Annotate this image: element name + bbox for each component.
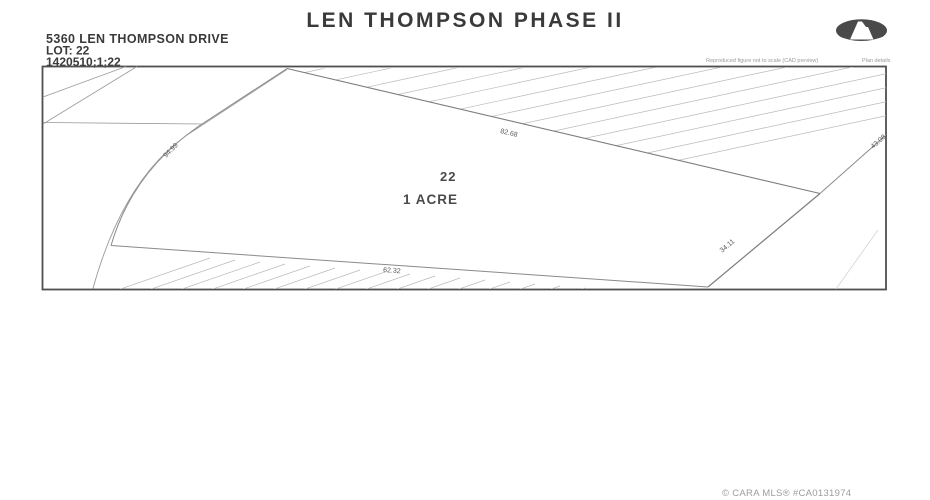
svg-text:1 ACRE: 1 ACRE <box>403 192 458 207</box>
svg-text:Plan details: Plan details <box>862 58 891 64</box>
svg-text:© CARA MLS® #CA0131974: © CARA MLS® #CA0131974 <box>722 488 851 499</box>
svg-text:34.11: 34.11 <box>719 238 737 254</box>
svg-text:94.99: 94.99 <box>162 142 179 159</box>
svg-text:22: 22 <box>440 169 456 184</box>
svg-text:82.68: 82.68 <box>500 128 519 139</box>
svg-text:62.32: 62.32 <box>383 267 401 275</box>
svg-text:LEN THOMPSON PHASE II: LEN THOMPSON PHASE II <box>306 9 623 32</box>
svg-text:43.08: 43.08 <box>870 134 888 151</box>
svg-text:Reproduced figure not to scale: Reproduced figure not to scale (CAD prev… <box>706 58 818 64</box>
